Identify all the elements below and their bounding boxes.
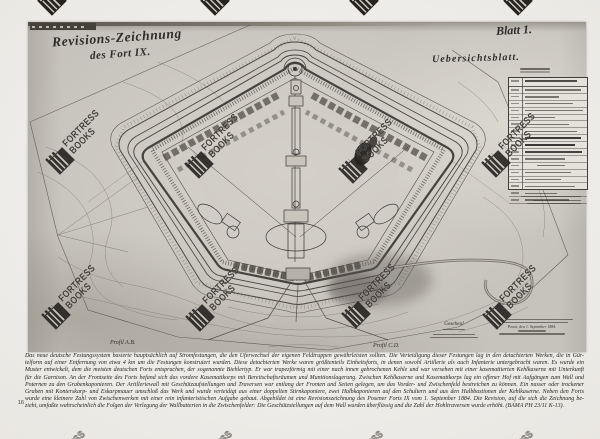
book-page: Revisions-Zeichnung des Fort IX. Blatt 1… <box>0 0 600 439</box>
fortress-books-watermark: FORTRESSBOOKS <box>28 420 103 439</box>
fortress-books-watermark: FORTRESSBOOKS <box>346 0 421 16</box>
page-number: 16 <box>12 400 24 406</box>
caption-line: Muster entwickelt, dem die meisten deuts… <box>25 367 584 374</box>
gesehen-label: Gesehen! <box>428 321 480 327</box>
fortress-books-watermark: FORTRESSBOOKS <box>500 0 575 16</box>
fortress-books-watermark: FORTRESSBOOKS <box>476 420 551 439</box>
parade-ground <box>188 82 408 274</box>
fortress-books-watermark: FORTRESSBOOKS <box>197 0 272 16</box>
overview-sheet-label: Uebersichtsblatt. <box>432 52 520 65</box>
caption-line: Poternen zu den Grabenkaponieren. Der Ar… <box>25 382 584 389</box>
profile-cd-label: Profil C.D. <box>373 343 400 349</box>
sheet-number-label: Blatt 1. <box>496 22 533 39</box>
approval-note: Gesehen! <box>428 321 480 340</box>
watermark-text: FORTRESSBOOKS <box>495 430 542 439</box>
fortress-books-logo-icon <box>202 0 230 16</box>
caption-line: zieht, umfaßte wahrscheinlich die Folgen… <box>25 403 584 410</box>
watermark-text: FORTRESSBOOKS <box>345 430 392 439</box>
profile-ab-label: Profil A.B. <box>110 340 136 346</box>
legend-title-handwriting <box>520 68 550 70</box>
caption: Das neue deutsche Festungssystem basiert… <box>25 353 584 411</box>
watermark-text: FORTRESSBOOKS <box>47 430 94 439</box>
legend-notes <box>503 194 581 207</box>
watermark-text: FORTRESSBOOKS <box>194 430 241 439</box>
fortress-books-watermark: FORTRESSBOOKS <box>326 420 401 439</box>
fortress-books-logo-icon <box>351 0 379 16</box>
fortress-books-watermark: FORTRESSBOOKS <box>175 420 250 439</box>
fortress-books-logo-icon <box>505 0 533 16</box>
caption-line: für die Garnison. An der Frontseite des … <box>25 375 584 382</box>
fortress-books-logo-icon <box>39 0 67 16</box>
fortress-books-watermark: FORTRESSBOOKS <box>34 0 109 16</box>
